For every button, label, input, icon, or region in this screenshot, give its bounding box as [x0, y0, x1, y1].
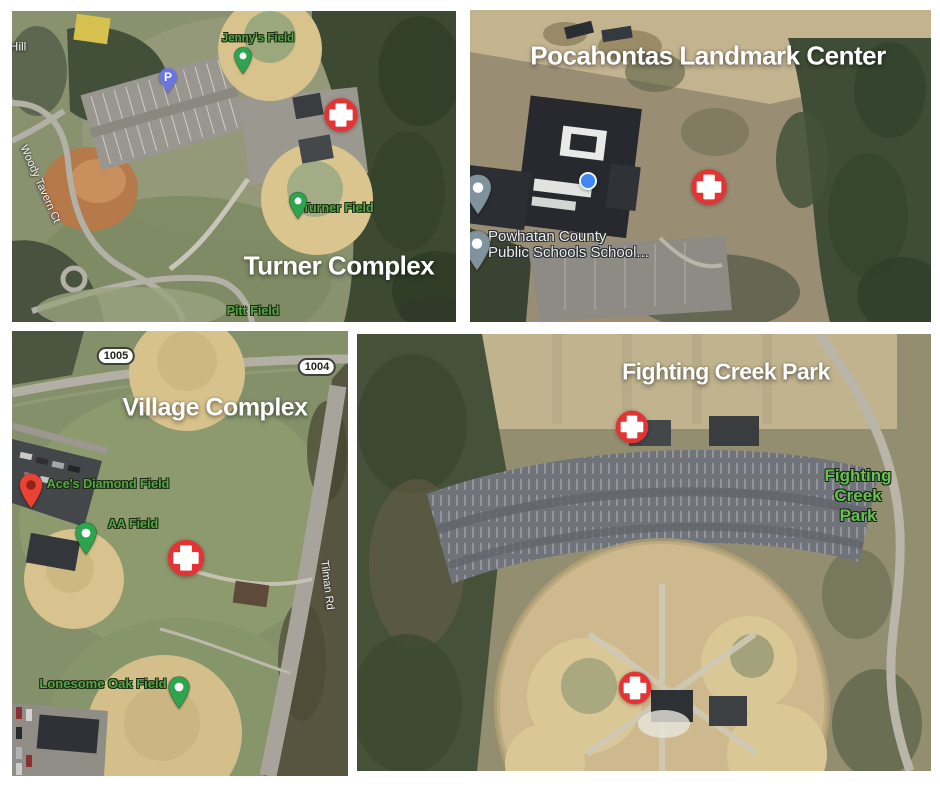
- first-aid-marker-turner[interactable]: [324, 98, 359, 133]
- poi-label-line2: Public Schools School...: [488, 245, 649, 261]
- poi-label-powhatan-schools: Powhatan County Public Schools School...: [488, 229, 649, 261]
- satellite-image-fighting-creek-park: [357, 334, 931, 771]
- field-label-pitt-field: Pitt Field: [227, 305, 280, 319]
- field-label-aa-field: AA Field: [108, 518, 158, 532]
- first-aid-marker-village[interactable]: [167, 539, 205, 577]
- aed-locations-collage: Hill Woody Tavern Ct Jenny's Field Turne…: [0, 0, 940, 788]
- field-label-aces-diamond-field: Ace's Diamond Field: [47, 478, 169, 492]
- route-shield-1004: 1004: [298, 358, 336, 376]
- poi-label-line1: Powhatan County: [488, 229, 649, 245]
- panel-title-pocahontas-landmark-center: Pocahontas Landmark Center: [530, 41, 885, 72]
- panel-title-village-complex: Village Complex: [122, 394, 307, 423]
- parking-pin[interactable]: P: [158, 68, 178, 93]
- park-label-line1: Fighting: [822, 466, 895, 486]
- panel-title-turner-complex: Turner Complex: [244, 251, 434, 282]
- field-pin-jennys-field[interactable]: [233, 46, 253, 75]
- poi-pin-aces-diamond-field[interactable]: [18, 472, 44, 510]
- panel-turner-complex: Hill Woody Tavern Ct Jenny's Field Turne…: [12, 11, 456, 322]
- parking-letter: P: [164, 70, 172, 84]
- route-1005-text: 1005: [104, 350, 128, 362]
- location-blue-dot[interactable]: [579, 172, 597, 190]
- field-pin-turner-field[interactable]: [288, 191, 308, 220]
- panel-village-complex: 1005 1004 Ace's Diamond Field AA Field L…: [12, 331, 348, 776]
- first-aid-marker-fighting-creek-north[interactable]: [615, 410, 649, 444]
- field-pin-lonesome-oak-field[interactable]: [167, 675, 191, 710]
- park-label-line2: Creek Park: [822, 486, 895, 526]
- first-aid-marker-fighting-creek-south[interactable]: [618, 671, 652, 705]
- parking-pin-tail: [163, 85, 173, 93]
- road-label-hill: Hill: [12, 40, 26, 53]
- field-pin-aa-field[interactable]: [74, 521, 98, 556]
- school-pin-1[interactable]: [470, 173, 493, 216]
- park-label-fighting-creek: Fighting Creek Park: [822, 466, 895, 526]
- panel-fighting-creek-park: Fighting Creek Park Fighting Creek Park: [357, 334, 931, 771]
- route-shield-1005: 1005: [97, 347, 135, 365]
- route-1004-text: 1004: [305, 361, 329, 373]
- panel-title-fighting-creek-park: Fighting Creek Park: [622, 359, 830, 386]
- field-label-lonesome-oak-field: Lonesome Oak Field: [39, 677, 166, 691]
- first-aid-marker-pocahontas[interactable]: [691, 169, 728, 206]
- school-pin-2[interactable]: [470, 229, 492, 272]
- field-label-jennys-field: Jenny's Field: [222, 33, 294, 46]
- field-label-turner-field: Turner Field: [302, 202, 373, 216]
- panel-pocahontas-landmark-center: Powhatan County Public Schools School...…: [470, 10, 931, 322]
